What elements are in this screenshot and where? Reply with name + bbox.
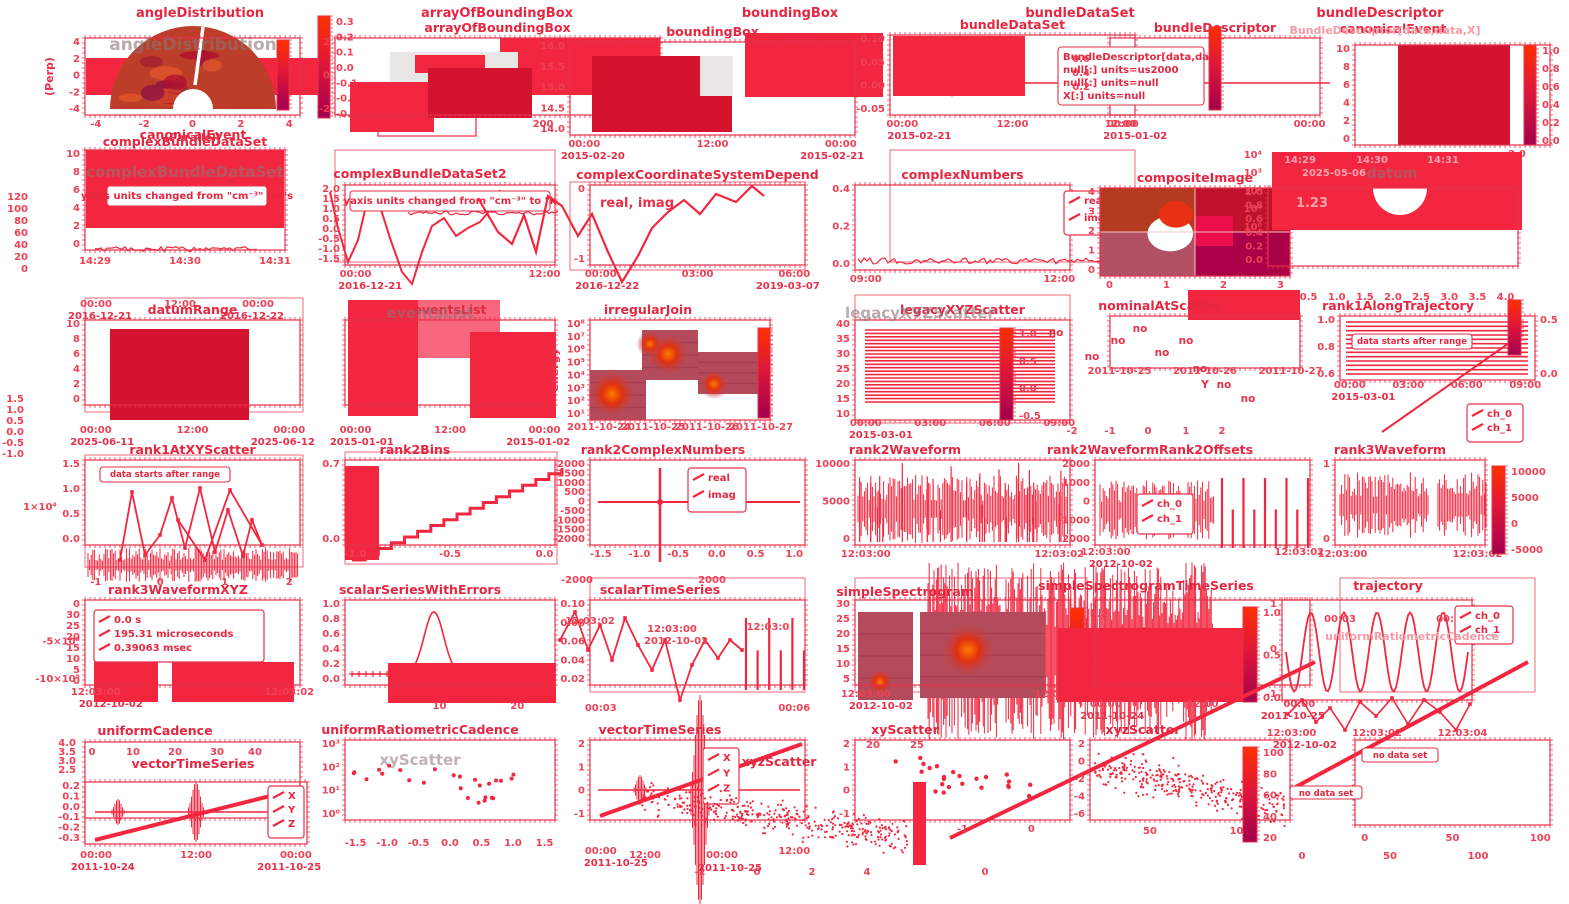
y-tick-label: 15 [836, 644, 850, 655]
y-tick-label: 1.0 [322, 599, 340, 610]
y-tick-label: 2 [73, 221, 80, 232]
legend-item-label: imag [708, 490, 736, 501]
x-tick-label: 0.0 [708, 549, 726, 560]
figure-suptitle: arrayOfBoundingBox [421, 6, 574, 21]
y-tick-label: -1 [839, 809, 850, 820]
x-tick-label: 14:31 [259, 256, 291, 267]
y-tick-label: 0 [73, 71, 80, 82]
inline-label: no [1133, 323, 1148, 335]
legend-item-label: 195.31 microseconds [114, 629, 233, 640]
y-tick-label: -1000 [1058, 515, 1090, 526]
y-tick-label: 10⁸ [567, 319, 585, 330]
x-tick-label: 00:00 [585, 846, 617, 857]
y-tick-label: 1 [1323, 459, 1330, 470]
x-date-label: 2012-10-02 [1089, 559, 1153, 570]
stray-axis-tick: 0 [73, 676, 80, 687]
x-tick-label: 00:00 [568, 139, 600, 150]
stray-label: -2000 [561, 575, 593, 586]
y-tick-label: 0 [1088, 265, 1095, 276]
panel-noData: 050100no data setno data set [1290, 737, 1553, 844]
spectrogram-hotspot [587, 369, 638, 420]
y-tick-label: 5 [843, 674, 850, 685]
y-tick-label: 0 [1270, 644, 1277, 655]
x-tick-label: -1.5 [345, 838, 367, 849]
stray-label: 12:03:02 [565, 616, 615, 627]
panel-title: rank2ComplexNumbers [581, 442, 745, 457]
y-tick-label: 0.02 [560, 674, 585, 685]
y-tick-label: 14.5 [540, 103, 565, 114]
panel-datum: datum1.00.80.60.40.20.00.00.51.01.52.02.… [1245, 152, 1522, 303]
stray-label: 25 [910, 740, 924, 751]
y2-tick-label: 0.0 [1540, 369, 1558, 380]
y-tick-label: -4 [69, 104, 80, 115]
x-axis-label: Y [1200, 378, 1210, 391]
y-tick-label: 0.06 [560, 637, 585, 648]
axes-tickmarks [587, 182, 808, 268]
annotation-text: yaxis units changed from "cm⁻³" to "s [81, 191, 293, 202]
legend-item-label: ch_1 [1487, 423, 1512, 434]
x-tick-label: 4 [286, 119, 293, 130]
panel-title: complexNumbers [901, 167, 1023, 182]
y-tick-label: 4 [73, 203, 80, 214]
y-tick-label: 0.8 [322, 614, 340, 625]
stray-label: uniformRatiometricCadence [1325, 630, 1499, 643]
x-tick-label: 100 [1530, 833, 1551, 844]
inline-label: no [1049, 327, 1064, 339]
y-tick-label: 0 [578, 184, 585, 195]
data-rect [428, 68, 532, 118]
colorbar-tick-label: 100 [1263, 748, 1284, 759]
y-tick-label: 10³ [322, 739, 340, 750]
y-tick-label: 10¹ [322, 786, 340, 797]
legend-item-label: Y [722, 768, 731, 779]
x-tick-label: 12:03:00 [1318, 549, 1368, 560]
x-date-label: 2012-10-02 [79, 699, 143, 710]
panel-title: irregularJoin [604, 302, 692, 317]
x-tick-label: 2011-10-27 [1259, 366, 1323, 377]
x-tick-label: 00:00 [80, 850, 112, 861]
panel-scalarTimeSeries: scalarTimeSeries0.100.080.060.040.0200:0… [558, 582, 810, 714]
legend-item-label: X [288, 791, 296, 802]
stray-axis-tick: 40 [14, 240, 28, 251]
stray-label: 00:00 [80, 299, 112, 310]
inline-label: real, imag [600, 196, 674, 211]
panel-title: rank2WaveformRank2Offsets [1047, 442, 1253, 457]
y-tick-label: 0.2 [62, 781, 80, 792]
stray-axis-tick: 2.5 [58, 765, 76, 776]
x-tick-label: 2011-10-27 [729, 422, 793, 433]
y-tick-label: 0 [578, 786, 585, 797]
y-tick-label: 8 [1343, 62, 1350, 73]
legend-item-label: ch_0 [1157, 499, 1182, 510]
x-date-label: 2015-03-01 [1331, 392, 1395, 403]
x-tick-label: -1 [957, 824, 968, 835]
x-date-label: 2015-01-02 [1103, 131, 1167, 142]
stray-axis-tick: 30 [66, 610, 80, 621]
stray-label: 12:03:0 [747, 622, 790, 633]
x-tick-label: -1.0 [376, 838, 398, 849]
colorbar-tick-label: 0.8 [1542, 64, 1560, 75]
y-tick-label: 10⁶ [567, 345, 585, 356]
stray-axis-tick: 10 [66, 654, 80, 665]
x-tick-label: -0.5 [439, 549, 461, 560]
colorbar-tick-label: 10000 [1511, 467, 1546, 478]
y-tick-label: -1.5 [318, 254, 340, 265]
stray-label: -1 [1104, 426, 1115, 437]
y-tick-label: 0.0 [62, 534, 80, 545]
panel-vectorTimeSeries: vectorTimeSeries0.20.10.0-0.1-0.2-0.300:… [58, 756, 321, 873]
waveform [1340, 472, 1428, 538]
y-tick-label: 30 [836, 599, 850, 610]
x-tick-label: 00:00 [1294, 119, 1326, 130]
panel-title: vectorTimeSeries [599, 722, 722, 737]
colorbar-tick-label: 1.0 [1542, 46, 1560, 57]
panel-rank2ComplexNumbers: rank2ComplexNumbers2000150010005000-500-… [553, 442, 808, 562]
y-tick-label: -0.05 [856, 104, 885, 115]
y-tick-label: 0.0 [62, 802, 80, 813]
y-tick-label: -0.1 [58, 812, 80, 823]
x-tick-label: 50 [1446, 833, 1460, 844]
x-tick-label: 12:00 [997, 119, 1029, 130]
x-tick-label: 06:00 [1451, 380, 1483, 391]
panel-watermark-title: complexBundleDataSet [86, 163, 283, 181]
x-tick-label: 00:00 [1334, 380, 1366, 391]
y-tick-label: -0.2 [58, 823, 80, 834]
y-tick-label: 0.0 [1245, 255, 1263, 266]
x-tick-label: 1 [1163, 280, 1170, 291]
legend-item-label: ch_0 [1475, 611, 1500, 622]
y-tick-label: 8 [73, 167, 80, 178]
y-tick-label: 15.0 [540, 83, 565, 94]
y-tick-label: 0.2 [1245, 241, 1263, 252]
spectrogram-hotspot [636, 330, 663, 357]
colorbar-tick-label: 20 [1263, 833, 1277, 844]
waveform [1438, 473, 1486, 537]
y-tick-label: 1.0 [1317, 315, 1335, 326]
x-tick-label: 1.0 [785, 549, 803, 560]
inline-label: 14:29 [1284, 155, 1316, 166]
y-tick-label: 6 [73, 185, 80, 196]
panel-title: uniformCadence [97, 723, 212, 738]
stray-axis-tick: 20 [14, 252, 28, 263]
stray-axis-tick: 0.4 [1072, 68, 1090, 79]
colorbar-tick-label: 0 [1511, 519, 1518, 530]
y-tick-label: 35 [836, 334, 850, 345]
inline-label: 2025-05-06 [1302, 168, 1366, 179]
spectrogram-hotspot [939, 621, 997, 679]
y-tick-label: 6 [1343, 80, 1350, 91]
inline-label: no [1111, 335, 1126, 347]
legend-item-label: ch_0 [1487, 409, 1512, 420]
x-tick-label: 12:03:00 [1081, 547, 1131, 558]
stray-axis-tick: 20 [66, 632, 80, 643]
stray-axis-tick: 10³ [1244, 168, 1262, 179]
y-tick-label: 0 [1343, 134, 1350, 145]
stray-label: 0 [1299, 851, 1306, 862]
x-tick-label: 3 [1277, 280, 1284, 291]
inline-label: no [1155, 347, 1170, 359]
x-tick-label: 00:00 [1283, 699, 1315, 710]
panel-scalarSeriesWithErrors: scalarSeriesWithErrors1.00.80.60.40.20.0… [322, 582, 558, 712]
y-tick-label: 0 [73, 239, 80, 250]
x-tick-label: 12:00 [1187, 699, 1219, 710]
stray-axis-tick: 0.2 [1072, 82, 1090, 93]
y-tick-label: 1000 [1062, 478, 1090, 489]
stray-label: 100 [1468, 851, 1489, 862]
x-tick-label: 03:00 [914, 418, 946, 429]
y-tick-label: 4 [1088, 187, 1095, 198]
x-tick-label: 0 [1361, 833, 1368, 844]
x-tick-label: 00:00 [273, 425, 305, 436]
colorbar-tick-label: 0.1 [336, 48, 354, 59]
x-date-label: 2019-03-07 [756, 281, 820, 292]
x-tick-label: 14:29 [79, 256, 111, 267]
stray-label: 1 [1183, 426, 1190, 437]
panel-title: rank3Waveform [1334, 442, 1446, 457]
y-tick-label: 10 [1336, 44, 1350, 55]
y-tick-label: 0.00 [860, 81, 885, 92]
legend-item-label: 0.0 s [114, 615, 141, 626]
x-date-label: 2011-10-25 [257, 862, 321, 873]
inline-label: 14:30 [1356, 155, 1388, 166]
inline-label: 00:03 [1324, 614, 1356, 625]
colorbar-tick-label: -5000 [1511, 545, 1543, 556]
panel-rank3Waveform: rank3Waveform1012:03:0012:03:02ch_0ch_11… [1318, 404, 1546, 560]
stray-label: 10 [126, 747, 140, 758]
y-tick-label: 10 [66, 149, 80, 160]
panel-watermark-title: legacyXYZScatter [845, 304, 995, 322]
colorbar [1243, 607, 1257, 702]
y-tick-label: 10¹ [567, 409, 585, 420]
x-date-label: 2025-06-12 [251, 437, 315, 448]
figure-suptitle: boundingBox [742, 6, 839, 21]
stray-label: 00:00 [706, 850, 738, 861]
y-tick-label: 2 [578, 739, 585, 750]
y-tick-label: -2 [69, 87, 80, 98]
colorbar [277, 40, 289, 110]
panel-vectorTimeSeries: vectorTimeSeries210-100:0012:002011-10-2… [574, 695, 810, 904]
y-tick-label: 8 [73, 334, 80, 345]
y-tick-label: 0.6 [1317, 369, 1335, 380]
y-tick-label: -1 [574, 254, 585, 265]
x-tick-label: 0.0 [441, 838, 459, 849]
y-tick-label: 0.4 [832, 184, 850, 195]
stray-label: 00:00 [242, 299, 274, 310]
y-tick-label: 10000 [815, 459, 850, 470]
panel-title: rank1AtXYScatter [129, 442, 256, 457]
panel-uniformRatiometricCadence: uniformRatiometricCadence10³10²10¹10⁰-1.… [321, 722, 558, 849]
panel-bundleDescriptor: bundleDescriptor12:0000:002015-01-02Bund… [1058, 20, 1325, 142]
figure-suptitle: bundleDescriptor [1316, 6, 1444, 21]
x-tick-label: 06:00 [778, 269, 810, 280]
panel-rank2WaveformRank2Offsets: rank2WaveformRank2Offsets200010000-1000-… [1047, 442, 1324, 570]
inline-label: 14:31 [1427, 155, 1459, 166]
colorbar-ticks [1221, 27, 1224, 107]
panel-title: rank2Bins [380, 442, 451, 457]
x-tick-label: 0.0 [536, 549, 554, 560]
colorbar [1524, 45, 1536, 145]
panel-legacyXYZScatter: legacyXYZScatterlegacyXYZScatter40353025… [836, 302, 1075, 441]
panel-title: arrayOfBoundingBox [424, 20, 570, 35]
y-tick-label: 1 [1088, 246, 1095, 257]
x-tick-label: 12:00 [177, 425, 209, 436]
x-tick-label: 12:00 [697, 139, 729, 150]
inline-label: no [1179, 335, 1194, 347]
y-tick-label: 0.04 [560, 655, 585, 666]
y-tick-label: 10² [322, 762, 340, 773]
panel-rank2Bins: rank2Bins0.70.0-1.0-0.50.0 [322, 442, 562, 560]
y-tick-label: 10 [836, 659, 850, 670]
stray-label: 20 [168, 747, 182, 758]
x-tick-label: 12:00 [778, 846, 810, 857]
waveform [858, 475, 1068, 543]
stray-label: 2 [809, 867, 816, 878]
x-tick-label: 1.5 [536, 838, 554, 849]
figure-suptitle: angleDistribution [136, 6, 264, 21]
axes-frame [855, 320, 1070, 420]
x-tick-label: 00:00 [340, 425, 372, 436]
y-tick-label: 30 [836, 349, 850, 360]
legend-item-label: X [723, 753, 731, 764]
stray-axis-tick: 0.5 [6, 416, 24, 427]
x-tick-label: 03:00 [682, 269, 714, 280]
axes-tickmarks [852, 737, 1073, 823]
x-tick-label: 14:30 [169, 256, 201, 267]
stray-label: 12:03:00 [647, 624, 697, 635]
colorbar [1508, 300, 1521, 355]
panel-angleDistribution: angleDistribution420-2-4-4-2024(Perp)(Pa… [43, 16, 358, 144]
y-tick-label: 10⁰ [322, 809, 340, 820]
stray-axis-tick: 15 [66, 643, 80, 654]
stray-axis-tick: 10⁴ [1244, 150, 1262, 161]
x-tick-label: -4 [90, 119, 101, 130]
x-tick-label: -1 [90, 577, 101, 588]
y-tick-label: 0 [843, 534, 850, 545]
stray-axis-tick: 100 [7, 204, 28, 215]
x-tick-label: -0.5 [408, 838, 430, 849]
annotation-text: yaxis units changed from "cm⁻³" to "k [344, 196, 557, 207]
y-tick-label: 2 [323, 37, 330, 48]
x-tick-label: -1.0 [345, 549, 367, 560]
data-rect [700, 56, 733, 96]
panel-title: xyzScatter [1106, 722, 1182, 737]
y-tick-label: 0 [1078, 757, 1085, 768]
x-tick-label: 00:00 [340, 269, 372, 280]
stray-label: -2 [1066, 426, 1077, 437]
y-tick-label: 0.5 [62, 509, 80, 520]
stray-label: xyzScatter [742, 754, 818, 769]
panel-watermark-title: angleDistribution [109, 35, 277, 55]
colorbar-tick-label: 0.5 [1019, 356, 1037, 367]
colorbar-tick-label: 0.6 [1542, 82, 1560, 93]
panel-complexBundleDataSet: complexBundleDataSetcomplexBundleDataSet… [66, 134, 293, 267]
colorbar-tick-label: 0.0 [1542, 136, 1560, 147]
panel-title: rank3WaveformXYZ [108, 582, 248, 597]
x-tick-label: 12:00 [1105, 119, 1137, 130]
y-tick-label: -6 [1074, 809, 1085, 820]
colorbar-tick-label: 0.4 [1542, 100, 1560, 111]
annotation-text: data starts after range [110, 470, 220, 480]
panel-title: uniformRatiometricCadence [321, 722, 518, 737]
stray-axis-tick: 60 [14, 228, 28, 239]
stray-label: 2016-12-21 [68, 311, 132, 322]
stray-label: 40 [248, 747, 262, 758]
stray-axis-tick: 10² [1244, 186, 1262, 197]
colorbar [1209, 27, 1221, 110]
y-tick-label: 0.0 [832, 259, 850, 270]
panel-title: simpleSpectrogram [836, 584, 974, 599]
y-tick-label: 0 [323, 71, 330, 82]
y-tick-label: 25 [836, 614, 850, 625]
x-tick-label: 00:00 [825, 139, 857, 150]
x-tick-label: 12:03:02 [264, 687, 314, 698]
colorbar-tick-label: 0.0 [336, 63, 354, 74]
y-tick-label: -2 [319, 104, 330, 115]
data-line [120, 488, 262, 560]
panel-title: bundleDataSet [960, 17, 1065, 32]
panel-watermark-title: eventsList [386, 304, 474, 322]
stray-label: 30 [210, 747, 224, 758]
x-tick-label: 0.5 [473, 838, 491, 849]
stray-axis-tick: 25 [66, 621, 80, 632]
y-tick-label: 0.0 [322, 674, 340, 685]
x-tick-label: 09:00 [1509, 380, 1541, 391]
legend-item-label: Z [288, 819, 295, 830]
stray-label: 50 [1383, 851, 1397, 862]
y-tick-label: 0 [843, 786, 850, 797]
y-tick-label: -4 [1074, 792, 1085, 803]
data-rect [1058, 628, 1243, 702]
panel-datumRange: datumRange108642000:0012:0000:002025-06-… [66, 302, 315, 448]
y-tick-label: 10³ [567, 383, 585, 394]
panel-complexBundleDataSet2: complexBundleDataSet22.01.51.00.50.0-0.5… [318, 166, 560, 292]
stray-label: 12:00 [629, 850, 661, 861]
stray-axis-tick: 120 [7, 192, 28, 203]
y-tick-label: 0.1 [62, 791, 80, 802]
x-tick-label: 12:03:00 [71, 687, 121, 698]
legend-item-label: Y [287, 805, 296, 816]
data-rect [913, 782, 926, 865]
x-tick-label: 0.5 [1300, 292, 1318, 303]
x-tick-label: 0 [1106, 280, 1113, 291]
panel-title: xyScatter [871, 722, 939, 737]
y-tick-label: -2 [1074, 774, 1085, 785]
x-date-label: 2011-10-24 [1080, 711, 1144, 722]
data-rect [110, 329, 249, 420]
x-tick-label: -1.0 [629, 549, 651, 560]
panel-title: rank1AlongTrajectory [1322, 298, 1474, 313]
x-tick-label: 1.0 [504, 838, 522, 849]
y-tick-label: 2000 [1062, 459, 1090, 470]
inline-label: no [1241, 393, 1256, 405]
stray-axis-tick: 0.0 [6, 427, 24, 438]
x-tick-label: 12:00 [180, 850, 212, 861]
panel-title: nominalAtScatter [1098, 298, 1222, 313]
stray-label: BundleDescriptor[data,data,X] [1290, 24, 1481, 37]
y2-tick-label: 0.5 [1540, 315, 1558, 326]
x-tick-label: 2 [1220, 280, 1227, 291]
colorbar-tick-label: 40 [1263, 812, 1277, 823]
panel-title: simpleSpectrogramTimeSeries [1038, 578, 1254, 593]
x-tick-label: 00:00 [850, 418, 882, 429]
colorbar-tick-label: 0.2 [1542, 118, 1560, 129]
x-tick-label: 00:00 [280, 850, 312, 861]
y-tick-label: 0 [1083, 497, 1090, 508]
figure-canvas: angleDistributionarrayOfBoundingBoxbound… [0, 0, 1569, 904]
x-date-label: 2016-12-21 [338, 281, 402, 292]
y-tick-label: 1.0 [62, 484, 80, 495]
y-tick-label: 0.2 [832, 222, 850, 233]
